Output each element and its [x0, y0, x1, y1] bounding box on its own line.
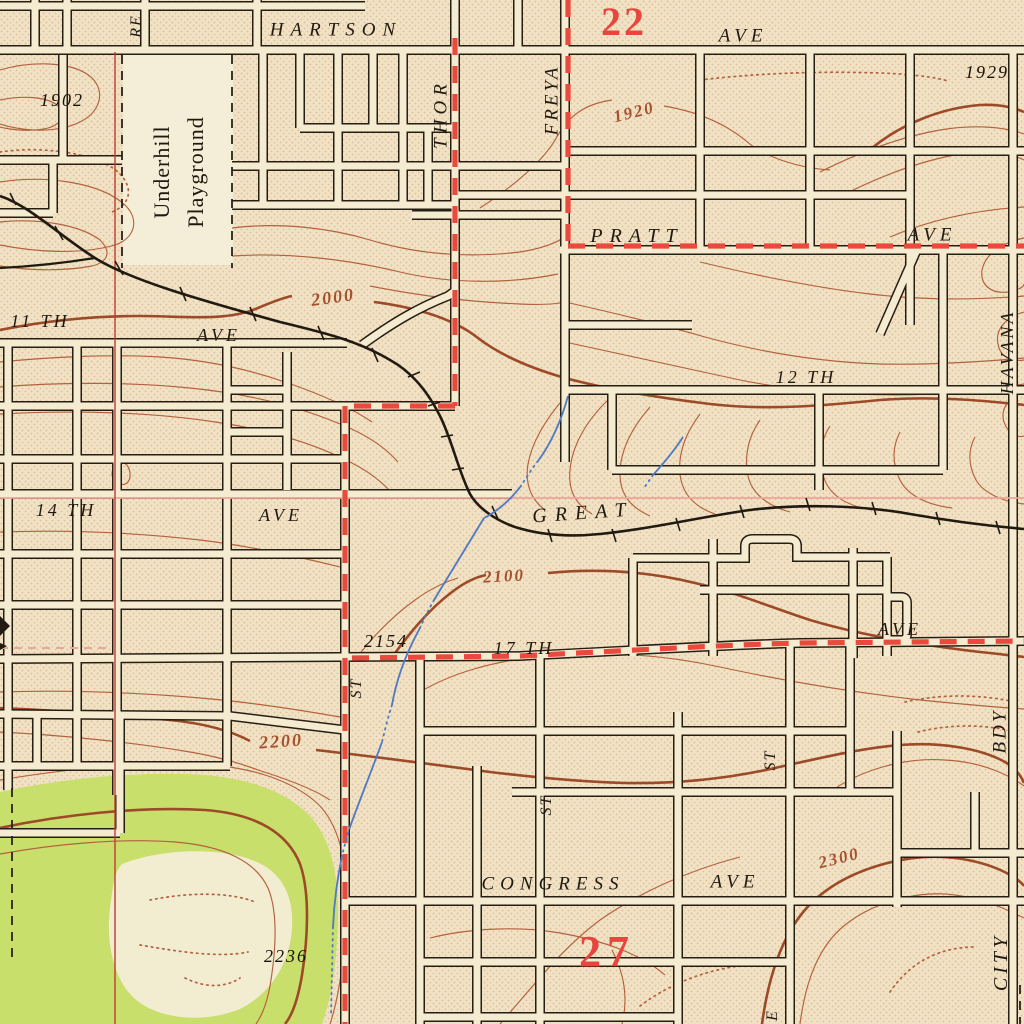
- spot-elevation-1929: 1929: [965, 63, 1009, 81]
- topographic-map: RE HARTSON AVE THOR FREYA PRATT AVE HAVA…: [0, 0, 1024, 1024]
- street-label-11th-ave: AVE: [197, 326, 241, 344]
- street-label-st-2: ST: [539, 795, 555, 816]
- street-label-14th-ave: AVE: [259, 506, 303, 524]
- street-label-st-1: ST: [349, 678, 365, 699]
- street-label-17th-ave: AVE: [878, 620, 922, 638]
- spot-elevation-2154: 2154: [364, 632, 408, 650]
- street-label-11th: 11 TH: [10, 312, 69, 330]
- contour-label-2100: 2100: [483, 566, 526, 585]
- street-label-st-3: ST: [763, 750, 779, 771]
- street-label-14th: 14 TH: [36, 501, 97, 519]
- street-label-havana: HAVANA: [998, 310, 1016, 395]
- section-number-27: 27: [579, 930, 635, 974]
- street-label-congress-ave: AVE: [711, 873, 760, 892]
- street-label-freya: FREYA: [543, 65, 562, 136]
- street-label-12th: 12 TH: [776, 368, 837, 386]
- playground-area: [123, 55, 233, 265]
- street-label-hartson: HARTSON: [270, 21, 402, 40]
- street-label-thor: THOR: [432, 79, 451, 149]
- street-label-pratt-ave: AVE: [908, 226, 957, 245]
- street-label-e-partial: E: [765, 1011, 781, 1021]
- street-label-pratt: PRATT: [590, 226, 683, 246]
- section-number-22: 22: [601, 2, 647, 42]
- place-label-playground: Playground: [185, 116, 207, 227]
- street-label-17th: 17 TH: [494, 639, 555, 657]
- street-label-congress: CONGRESS: [482, 875, 625, 894]
- street-label-re: RE: [129, 14, 145, 38]
- spot-elevation-2236: 2236: [264, 947, 308, 965]
- woodland-area: [0, 774, 338, 1024]
- boundary-label-bdy: BDY: [991, 709, 1010, 754]
- boundary-label-city: CITY: [991, 933, 1011, 991]
- street-label-hartson-ave: AVE: [719, 27, 768, 46]
- spot-elevation-1902: 1902: [40, 91, 84, 109]
- contour-label-2200: 2200: [258, 730, 303, 751]
- place-label-underhill: Underhill: [151, 125, 173, 218]
